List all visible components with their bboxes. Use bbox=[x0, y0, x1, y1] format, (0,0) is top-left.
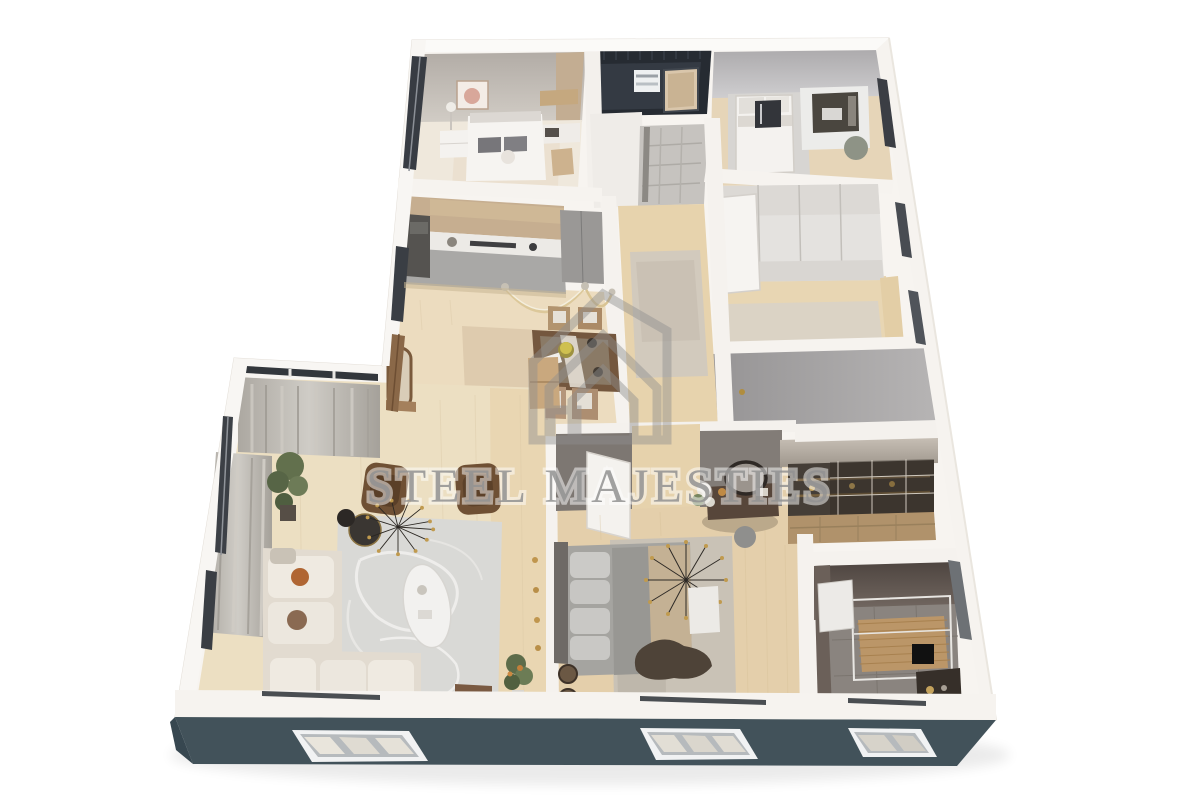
svg-text:STEEL MAJESTIES: STEEL MAJESTIES bbox=[366, 460, 834, 513]
